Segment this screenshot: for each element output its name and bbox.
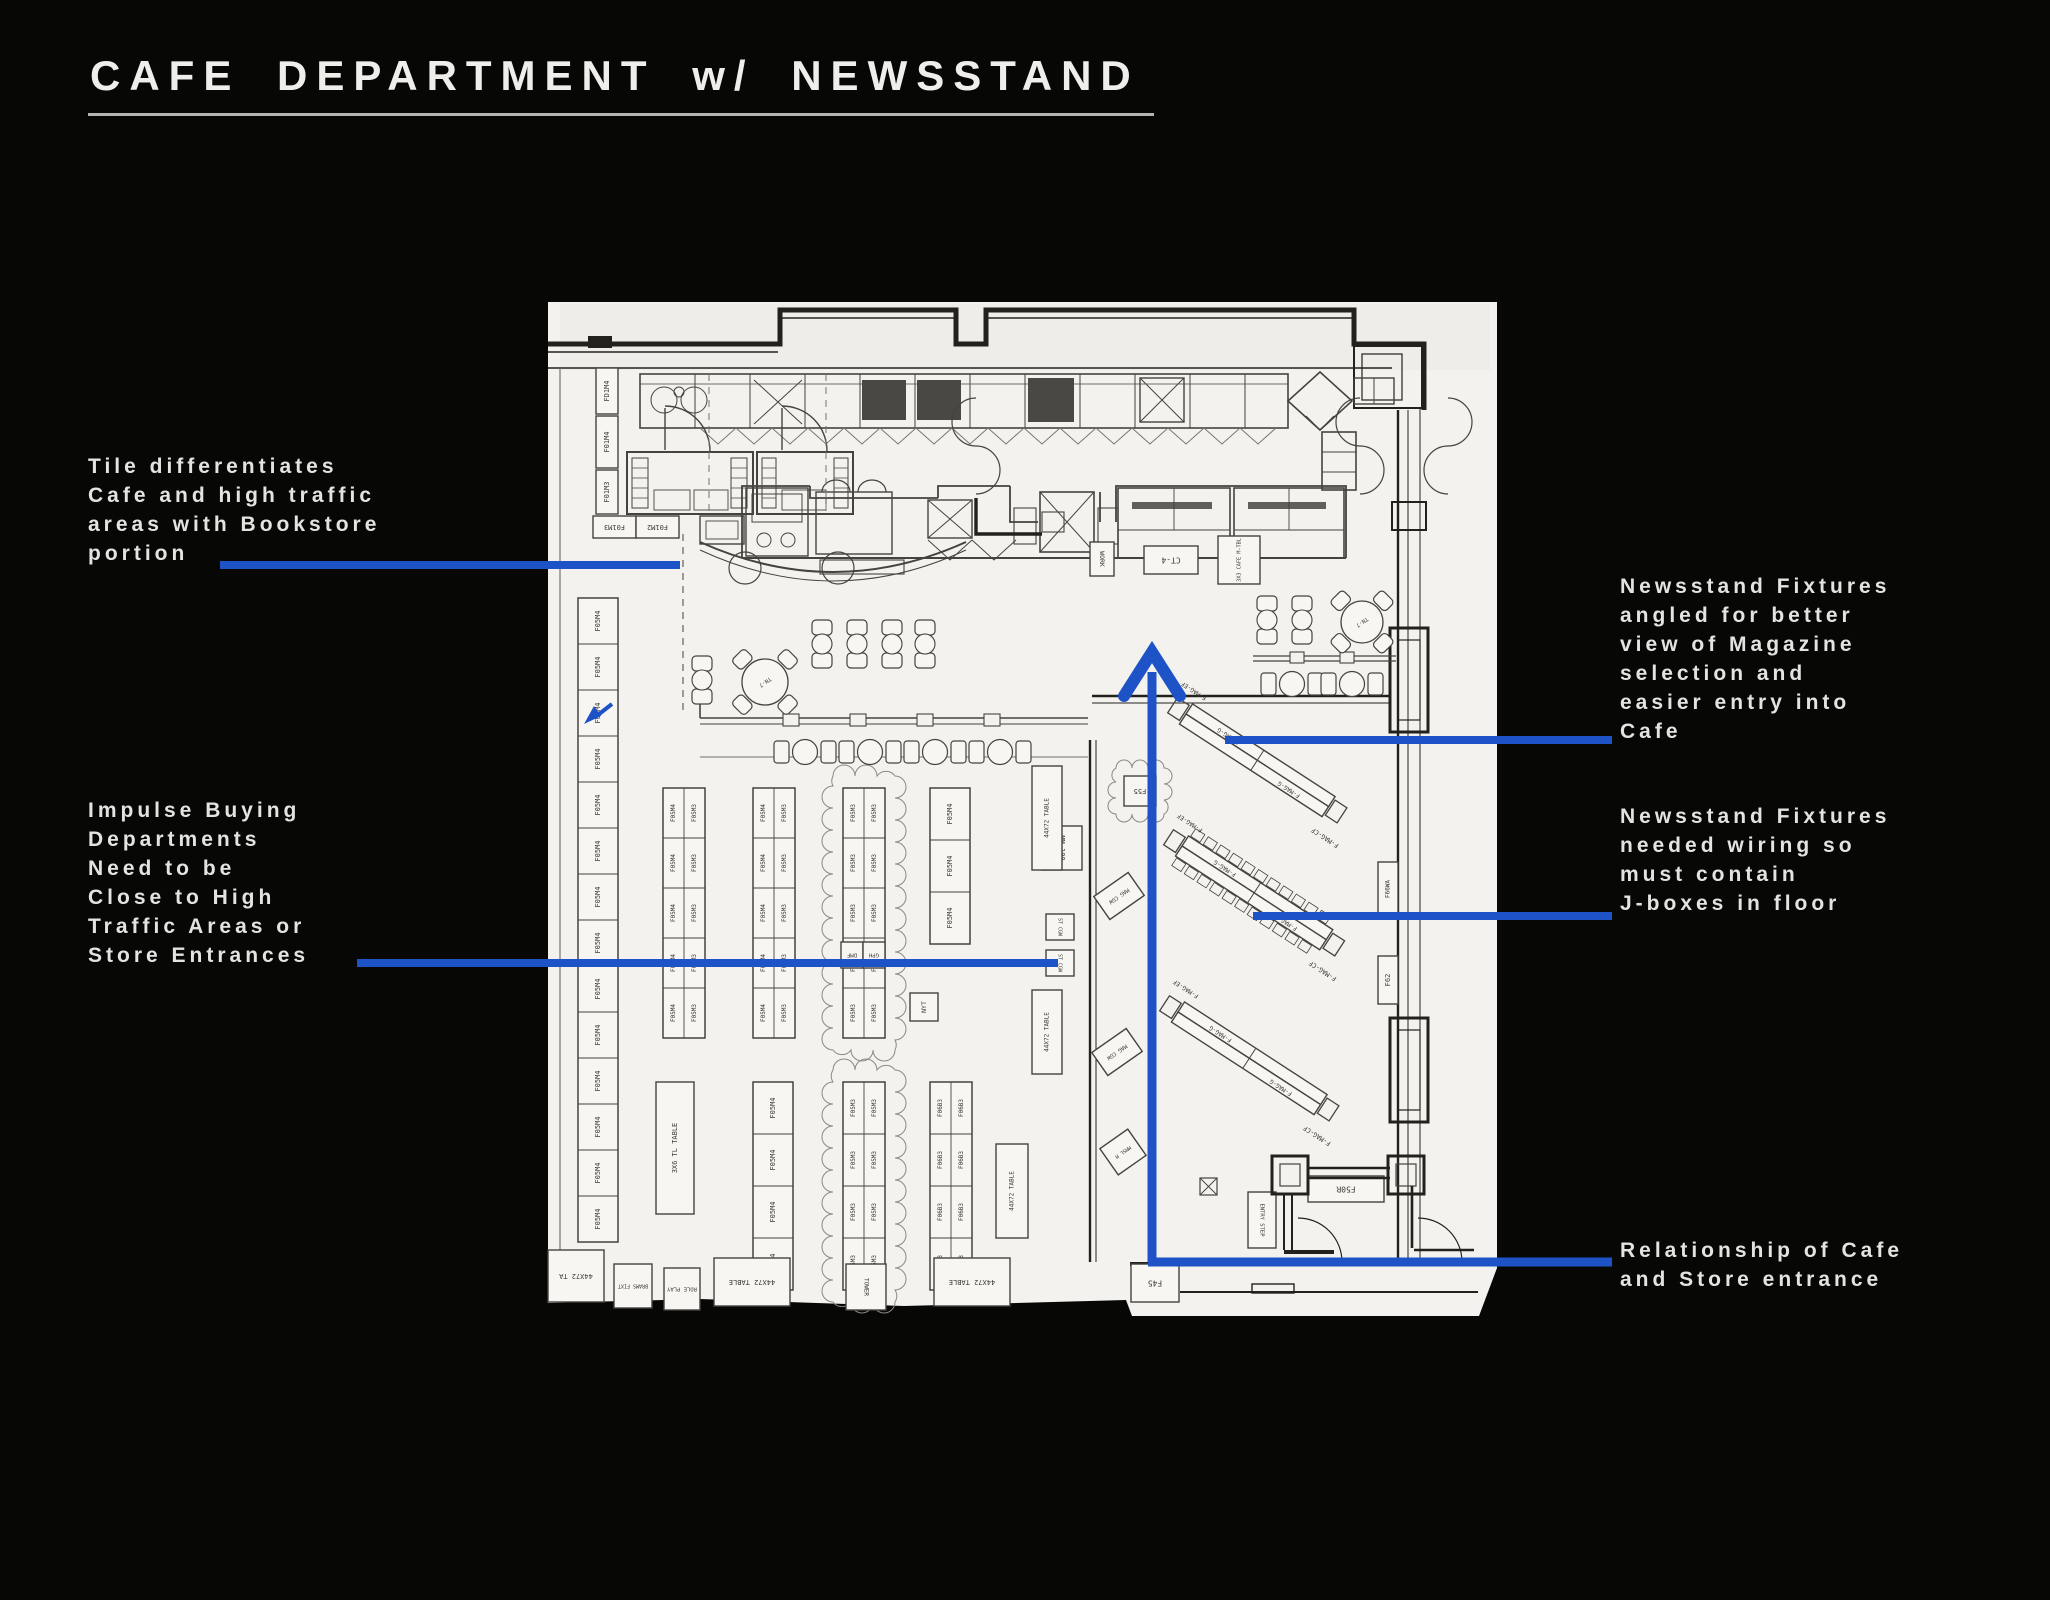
chair [1292,596,1312,611]
chair [692,689,712,704]
gondola-cell-label: F05M3 [781,904,788,922]
gondola-cell-label: F05M4 [594,1024,602,1045]
fixture-label: NYT [920,1001,928,1013]
gondola-cell-label: F05M3 [691,1004,698,1022]
photo-shading [560,304,1490,370]
fixture: F62 [1378,956,1398,1004]
fixture: 3X3 CAFE M-TBL [1218,536,1260,584]
fixture-label: BRAMS FIXT [618,1283,648,1289]
table-group [969,740,1031,765]
fixture-label: F55 [1134,787,1147,795]
fixture-label: 44X72 TABLE [1044,1012,1051,1052]
chair-pair [1257,596,1277,644]
gondola-cell-label: F05M3 [691,854,698,872]
gondola-cell-label: F05M4 [594,1208,602,1229]
fixture: F01M3 [593,516,636,538]
fixture-label: GPH [869,952,879,958]
chair-pair [915,620,935,668]
gondola-cell-label: F05M3 [691,904,698,922]
fixture-label: 3X3 CAFE M-TBL [1237,538,1243,582]
gondola-cell-label: F05M3 [850,804,857,822]
small-table [882,634,902,654]
gondola-cell-label: F05M3 [850,904,857,922]
chair [821,741,836,763]
chair [1257,629,1277,644]
gondola-cell-label: F06B3 [958,1099,965,1117]
table-group [1261,672,1323,697]
fixture-label: CT-4 [1161,556,1180,565]
gondola: F05M4F05M3F05M4F05M3F05M4F05M3F05M4F05M3… [663,788,705,1038]
gondola-cell-label: F05M4 [594,748,602,769]
small-table [915,634,935,654]
fixture-label: WORK [1098,551,1106,567]
gondola-cell-label: F05M3 [871,854,878,872]
fixture-label: F50R [1336,1185,1355,1194]
fixture: F50R [1308,1176,1384,1202]
chair [1261,673,1276,695]
small-table [1340,672,1365,697]
gondola-cell-label: F05M4 [760,1004,767,1022]
fixture-label: F66WA [1385,880,1392,898]
chair [1257,596,1277,611]
gondola-cell-label: F05M4 [946,907,954,928]
fixture: ST CGW [1046,914,1074,940]
gondola-cell-label: F05M3 [781,1004,788,1022]
fixture: FD1M4 [596,368,618,414]
chair-pair [812,620,832,668]
gondola-cell-label: F05M4 [769,1097,777,1118]
chair [1321,673,1336,695]
chair [951,741,966,763]
chair [886,741,901,763]
gondola-cell-label: F05M3 [850,854,857,872]
fixture-label: F45 [1148,1279,1163,1288]
gondola-cell-label: F05M4 [594,886,602,907]
chair [812,620,832,635]
chair [692,656,712,671]
fixture-label: 44X72 TABLE [1044,798,1051,838]
gondola-cell-label: F05M4 [594,1116,602,1137]
chair [847,620,867,635]
fixture-label: FD1M4 [603,380,611,401]
gondola-cell-label: F05M3 [871,1004,878,1022]
gondola-cell-label: F05M4 [670,904,677,922]
fixture-label: F01M3 [603,481,611,502]
small-table [1292,610,1312,630]
small-table [692,670,712,690]
fixture: NYT [910,993,938,1021]
fixture-label: 3X6 TL TABLE [671,1123,679,1174]
fixture: F66WA [1378,862,1398,916]
chair [847,653,867,668]
table-group [904,740,966,765]
fixture: 44X72 TABLE [996,1144,1028,1238]
gondola-cell-label: F05M3 [781,804,788,822]
gondola-cell-label: F06B3 [958,1151,965,1169]
chair [1016,741,1031,763]
gondola-cell-label: F05M4 [594,1070,602,1091]
fixture: TOWER [846,1264,886,1310]
gondola-cell-label: F05M3 [871,804,878,822]
gondola-cell-label: F05M4 [769,1201,777,1222]
chair [915,653,935,668]
fixture-label: 44X72 TABLE [729,1278,775,1286]
gondola-cell-label: F06B3 [937,1099,944,1117]
gondola-cell-label: F05M3 [850,1151,857,1169]
chair [882,653,902,668]
fixture: ENTRY STEP [1248,1192,1276,1248]
gondola-cell-label: F05M3 [871,1099,878,1117]
small-table [1257,610,1277,630]
fixture: 44X72 TA [548,1250,604,1302]
gondola-cell-label: F05M3 [781,854,788,872]
gondola-cell-label: F05M4 [594,1162,602,1183]
fixture: 44X72 TABLE [714,1258,790,1306]
small-table [923,740,948,765]
fixture-label: 44X72 TA [558,1272,593,1280]
chair-pair [847,620,867,668]
chair [812,653,832,668]
fixture: F45 [1131,1264,1179,1302]
small-table [1280,672,1305,697]
gondola-cell-label: F05M4 [670,854,677,872]
fixture-label: F62 [1384,974,1392,987]
fixture-label: ROLE PLAY [666,1286,696,1292]
chair [904,741,919,763]
floor-plan: F05M4F05M4F05M4F05M4F05M4F05M4F05M4F05M4… [0,0,2050,1600]
chair [1368,673,1383,695]
small-table [988,740,1013,765]
gondola-cell-label: F05M4 [760,904,767,922]
gondola-cell-label: F05M4 [760,804,767,822]
gondola-cell-label: F06B3 [937,1151,944,1169]
gondola-cell-label: F05M4 [760,854,767,872]
gondola-cell-label: F05M4 [594,610,602,631]
fixture: CT-4 [1144,546,1198,574]
gondola-cell-label: F05M4 [769,1149,777,1170]
table-group [1321,672,1383,697]
fixture: 44X72 TABLE [934,1258,1010,1306]
fixture: 44X72 TABLE [1032,990,1062,1074]
gondola-cell-label: F05M4 [946,803,954,824]
gondola-cell-label: F05M3 [850,1004,857,1022]
chair [774,741,789,763]
chair [839,741,854,763]
fixture-label: F01M3 [604,523,625,531]
fixture-label: TOWER [863,1278,870,1296]
gondola: F05M4F05M4F05M4F05M4F05M4F05M4F05M4F05M4… [578,598,618,1242]
fixture-label: ENTRY STEP [1259,1203,1265,1237]
gondola-cell-label: F05M4 [670,804,677,822]
small-table [793,740,818,765]
small-table [858,740,883,765]
small-table [847,634,867,654]
fixture: F01M3 [596,470,618,514]
fixture: BRAMS FIXT [614,1264,652,1308]
fixture-label: F01M4 [603,431,611,452]
gondola-cell-label: F05M3 [850,1203,857,1221]
chair-pair [1292,596,1312,644]
fixture: 3X6 TL TABLE [656,1082,694,1214]
fixture-label: ST CGW [1057,918,1063,937]
gondola-cell-label: F05M4 [594,794,602,815]
gondola-cell-label: F05M4 [594,932,602,953]
gondola-cell-label: F05M4 [594,840,602,861]
gondola-cell-label: F05M4 [594,656,602,677]
fixture: F01M2 [636,516,679,538]
gondola-cell-label: F06B3 [958,1203,965,1221]
fixture: 44X72 TABLE [1032,766,1062,870]
gondola: F05M4F05M3F05M4F05M3F05M4F05M3F05M4F05M3… [753,788,795,1038]
chair-pair [882,620,902,668]
fixture-label: F01M2 [647,523,668,531]
chair [969,741,984,763]
fixture: ROLE PLAY [664,1268,700,1310]
small-table [812,634,832,654]
gondola-cell-label: F05M3 [871,904,878,922]
fixture-label: 44X72 TABLE [949,1278,995,1286]
fixture-label: 44X72 TABLE [1009,1171,1016,1211]
gondola: F05M4F05M4F05M4 [930,788,970,944]
gondola-cell-label: F05M4 [946,855,954,876]
chair [882,620,902,635]
gondola-cell-label: F05M4 [670,1004,677,1022]
chair-pair [692,656,712,704]
fixture: F01M4 [596,416,618,468]
gondola-cell-label: F05M4 [594,978,602,999]
table-group [774,740,836,765]
fixture-label: DMF [847,952,857,958]
gondola-cell-label: F05M3 [871,1151,878,1169]
chair [915,620,935,635]
fixture: WORK [1090,542,1114,576]
table-group [839,740,901,765]
gondola-cell-label: F05M3 [691,804,698,822]
chair [1292,629,1312,644]
gondola-cell-label: F06B3 [937,1203,944,1221]
gondola-cell-label: F05M3 [871,1203,878,1221]
gondola-cell-label: F05M3 [850,1099,857,1117]
